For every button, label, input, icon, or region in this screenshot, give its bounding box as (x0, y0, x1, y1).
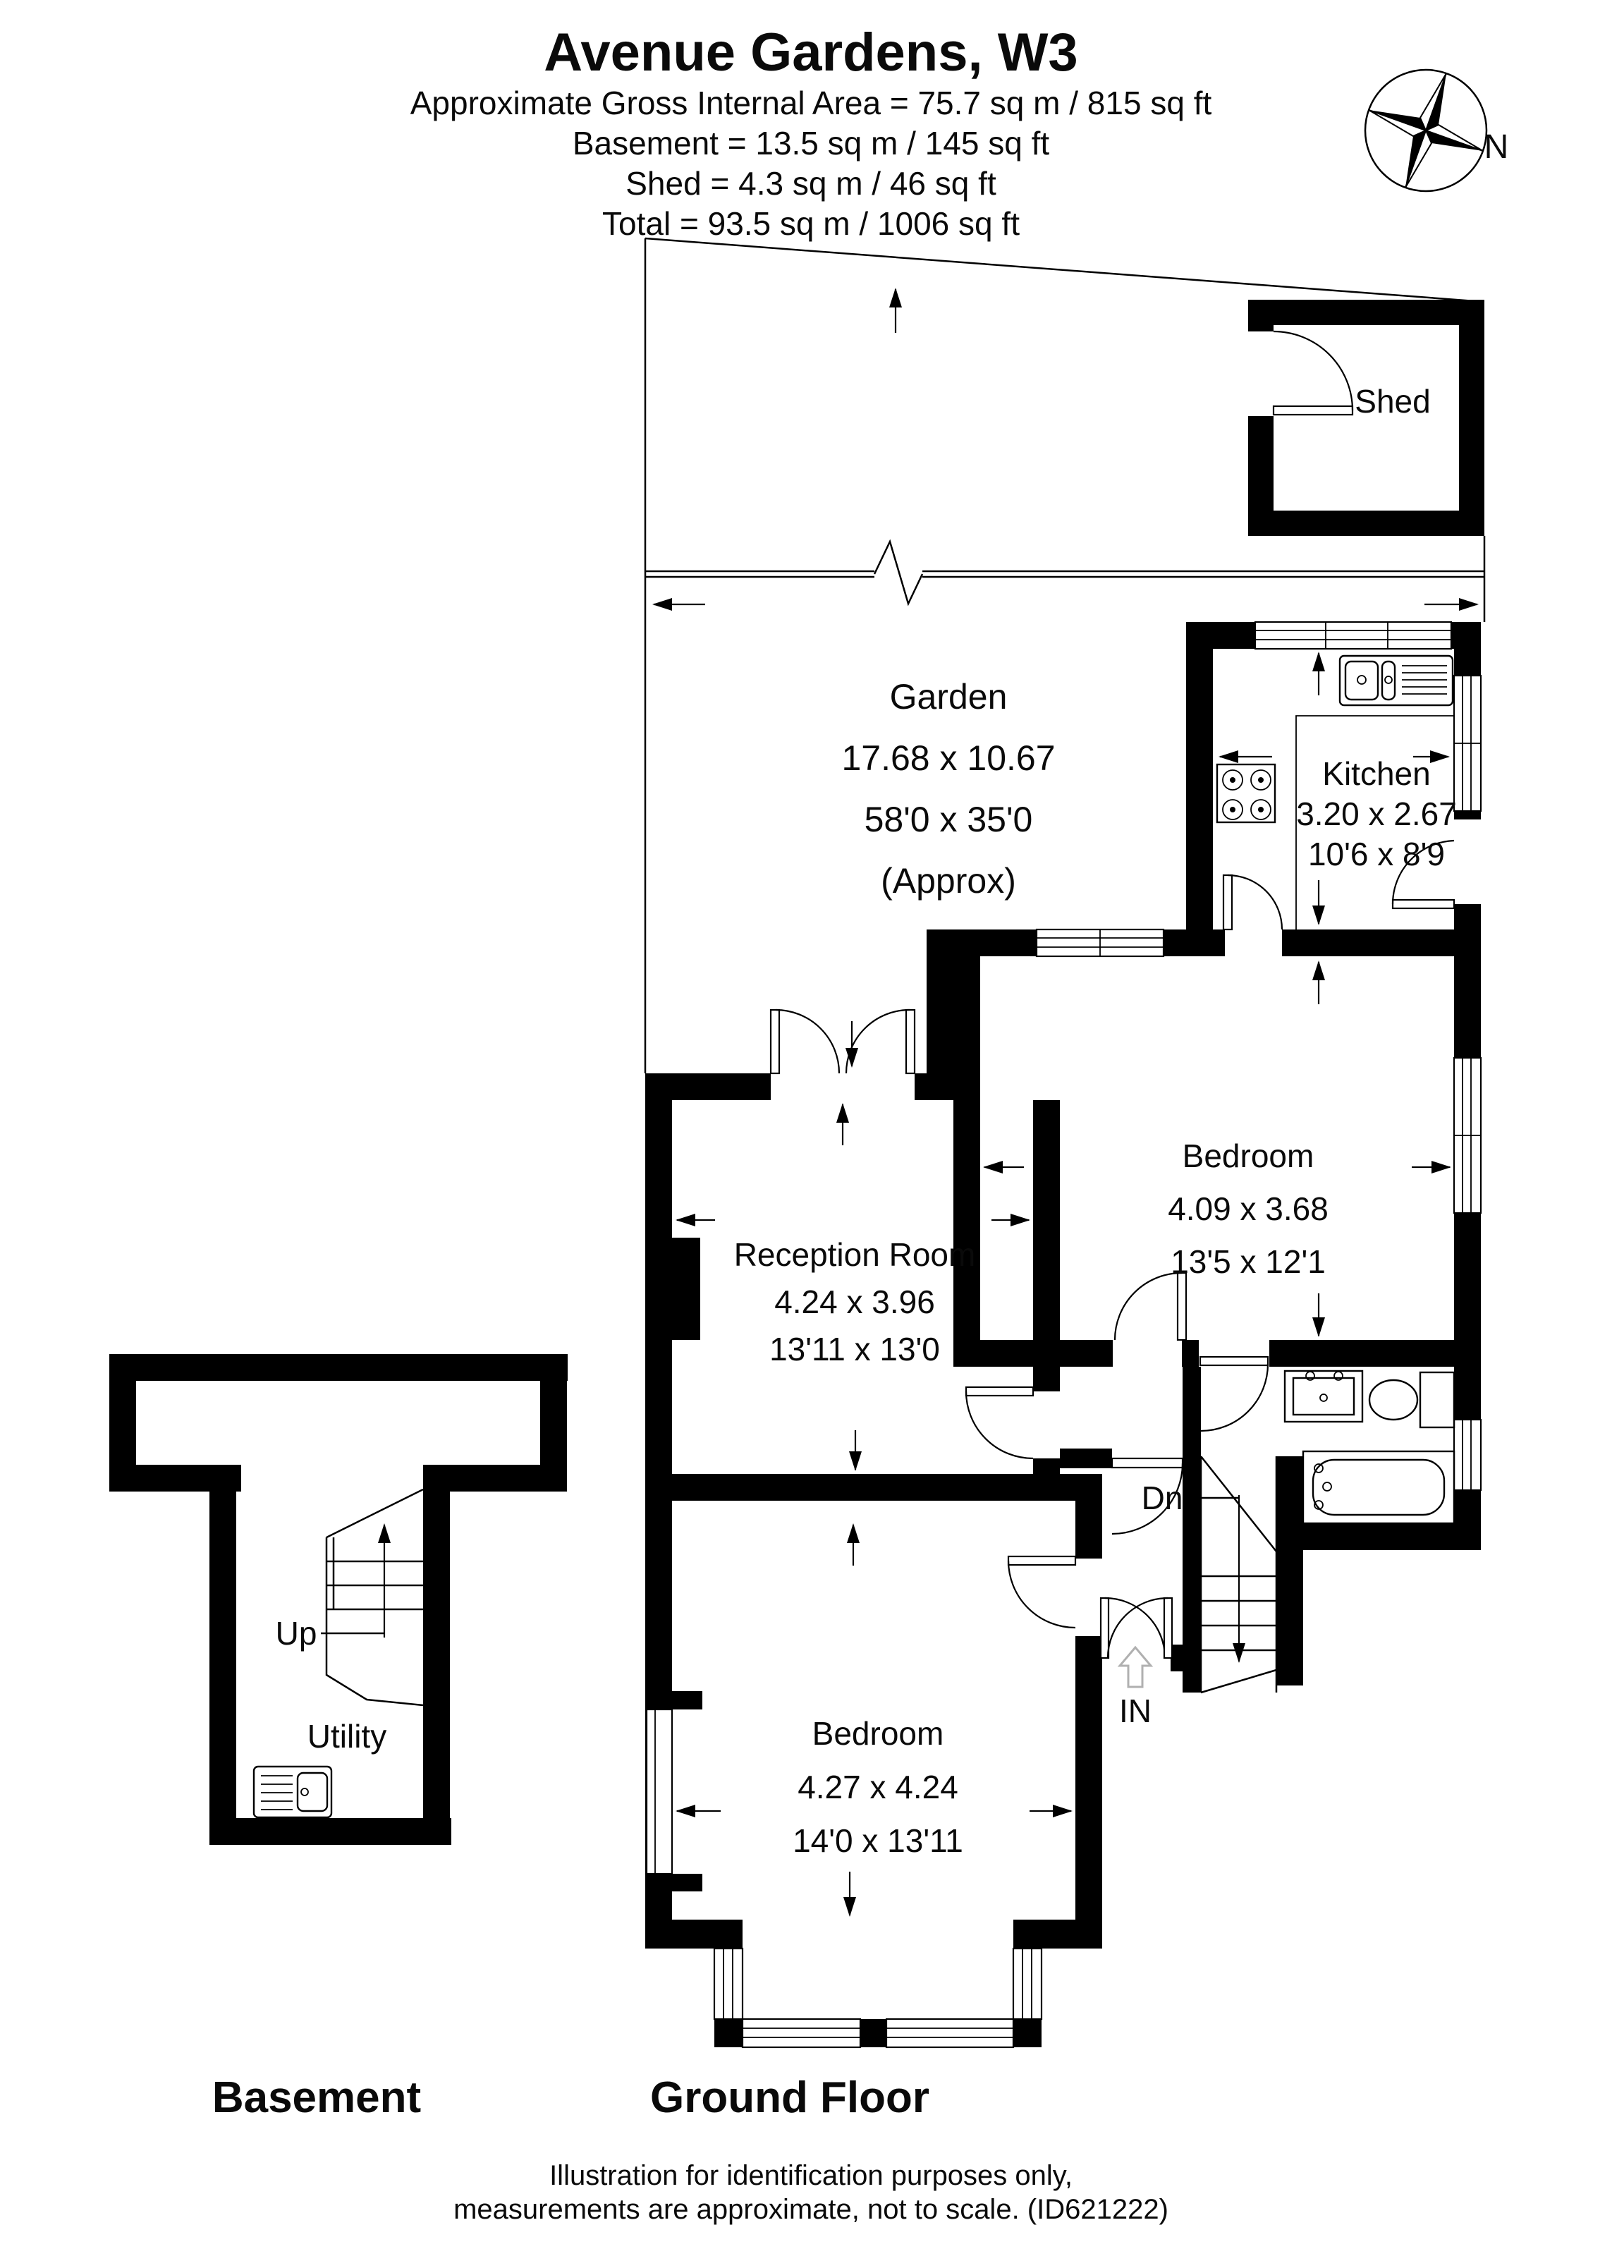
kitchen-side-window (1454, 676, 1481, 811)
utility-label: Utility (307, 1718, 386, 1755)
bath (1303, 1451, 1454, 1523)
floorplan-page: Avenue Gardens, W3 Approximate Gross Int… (0, 0, 1624, 2268)
header-basement-line: Basement = 13.5 sq m / 145 sq ft (573, 125, 1050, 161)
hob (1217, 764, 1275, 822)
reception-dim-metric: 4.24 x 3.96 (774, 1284, 935, 1320)
canvas-background (0, 0, 1624, 2268)
kitchen-window (1255, 622, 1451, 649)
stairs-up-label: Up (276, 1615, 317, 1652)
bedroom-rear-window (1037, 929, 1164, 956)
front-bedroom-recess (647, 1709, 672, 1874)
kitchen-sink (1340, 656, 1453, 705)
footer-line-1: Illustration for identification purposes… (549, 2160, 1073, 2191)
bedroom-rear-name: Bedroom (1183, 1138, 1314, 1174)
garden-name: Garden (890, 677, 1008, 717)
bedroom-front-dim-metric: 4.27 x 4.24 (798, 1769, 958, 1805)
bathroom-window (1454, 1420, 1481, 1490)
header-total-line: Total = 93.5 sq m / 1006 sq ft (602, 205, 1020, 242)
bedroom-front-dim-imperial: 14'0 x 13'11 (793, 1822, 963, 1859)
shed-name: Shed (1355, 383, 1430, 420)
kitchen-dim-metric: 3.20 x 2.67 (1296, 795, 1457, 832)
reception-name: Reception Room (734, 1236, 976, 1273)
garden-approx: (Approx) (881, 861, 1016, 901)
basement-title: Basement (212, 2073, 421, 2122)
bedroom-rear-dim-imperial: 13'5 x 12'1 (1171, 1243, 1326, 1280)
entrance-label: IN (1119, 1693, 1152, 1729)
utility-sink (254, 1767, 331, 1817)
bedroom-rear-dim-metric: 4.09 x 3.68 (1168, 1190, 1329, 1227)
bedroom-front-name: Bedroom (812, 1715, 944, 1752)
garden-dim-imperial: 58'0 x 35'0 (865, 800, 1033, 839)
header-area-line: Approximate Gross Internal Area = 75.7 s… (410, 85, 1212, 121)
header-shed-line: Shed = 4.3 sq m / 46 sq ft (625, 165, 996, 202)
garden-dim-metric: 17.68 x 10.67 (841, 738, 1055, 778)
reception-dim-imperial: 13'11 x 13'0 (769, 1331, 940, 1367)
kitchen-dim-imperial: 10'6 x 8'9 (1308, 836, 1445, 872)
bedroom-rear-side-window (1454, 1058, 1481, 1213)
compass-north-label: N (1484, 128, 1509, 166)
page-title: Avenue Gardens, W3 (544, 23, 1077, 83)
stairs-down-label: Dn (1142, 1480, 1183, 1516)
basin (1285, 1371, 1362, 1422)
kitchen-name: Kitchen (1322, 755, 1430, 792)
footer-line-2: measurements are approximate, not to sca… (453, 2194, 1168, 2225)
floorplan-drawing: Avenue Gardens, W3 Approximate Gross Int… (0, 0, 1624, 2268)
ground-floor-title: Ground Floor (650, 2073, 929, 2122)
